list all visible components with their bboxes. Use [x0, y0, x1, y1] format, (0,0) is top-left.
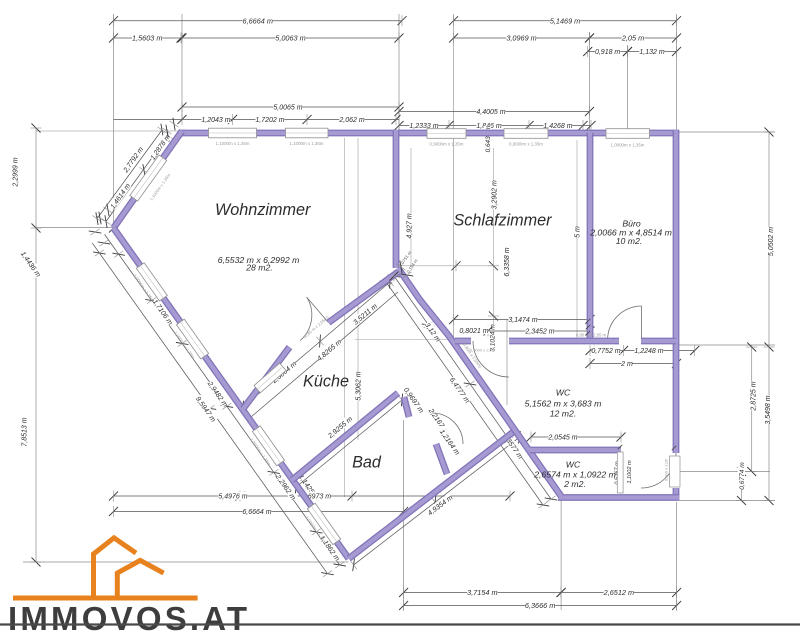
svg-text:6,3666 m: 6,3666 m [525, 601, 555, 610]
svg-text:6,3358 m: 6,3358 m [504, 247, 511, 276]
svg-text:2,0545 m: 2,0545 m [547, 435, 577, 442]
svg-text:5,1562 m x 3,683 m: 5,1562 m x 3,683 m [525, 399, 602, 409]
svg-text:0,6774 m: 0,6774 m [739, 462, 746, 490]
svg-text:5 m: 5 m [575, 226, 582, 238]
svg-text:2,05 m: 2,05 m [621, 34, 644, 43]
svg-text:3,0969 m: 3,0969 m [506, 34, 536, 43]
svg-text:5,0502 m: 5,0502 m [768, 227, 775, 256]
svg-text:5,1469 m: 5,1469 m [550, 16, 580, 25]
svg-text:10 m2.: 10 m2. [616, 236, 643, 246]
svg-text:0,9000 x 2,05: 0,9000 x 2,05 [470, 347, 495, 352]
svg-text:1,1002 m: 1,1002 m [627, 460, 633, 484]
svg-text:0,8021 m: 0,8021 m [459, 328, 488, 335]
svg-text:0,9000m x 1,35m: 0,9000m x 1,35m [430, 142, 464, 147]
svg-text:1,132 m: 1,132 m [639, 49, 664, 56]
svg-text:28 m2.: 28 m2. [245, 263, 273, 273]
svg-text:2 m: 2 m [620, 361, 633, 368]
svg-text:2,8725 m: 2,8725 m [751, 381, 758, 411]
svg-text:2,062 m: 2,062 m [338, 117, 364, 124]
svg-text:0,6431 m: 0,6431 m [485, 125, 492, 152]
svg-text:Bad: Bad [352, 453, 382, 471]
svg-text:7,8513 m: 7,8513 m [22, 417, 29, 446]
svg-text:1,5603 m: 1,5603 m [132, 34, 162, 43]
svg-text:3,2902 m: 3,2902 m [491, 180, 498, 209]
svg-text:5,0065 m: 5,0065 m [273, 105, 302, 112]
svg-text:6,6664 m: 6,6664 m [242, 509, 271, 516]
svg-text:1,2248 m: 1,2248 m [634, 348, 663, 355]
svg-text:6,6664 m: 6,6664 m [243, 16, 273, 25]
svg-text:0,9000m x 1,35m: 0,9000m x 1,35m [509, 142, 543, 147]
svg-text:2,6512 m: 2,6512 m [603, 588, 634, 597]
svg-text:0,900 x 2,05: 0,900 x 2,05 [663, 458, 668, 481]
svg-text:4,4005 m: 4,4005 m [476, 109, 505, 116]
svg-text:5,3062 m: 5,3062 m [356, 371, 363, 400]
svg-text:1,1000m x 1,35m: 1,1000m x 1,35m [216, 141, 250, 146]
svg-text:Schlafzimmer: Schlafzimmer [453, 211, 552, 229]
svg-text:2,6574 m x 1,0922 m: 2,6574 m x 1,0922 m [533, 470, 616, 480]
svg-text:IMMOVOS.AT: IMMOVOS.AT [8, 600, 250, 632]
svg-text:0,918 m: 0,918 m [595, 49, 620, 56]
svg-text:1,2043 m: 1,2043 m [201, 117, 230, 124]
svg-text:WC: WC [566, 460, 581, 470]
svg-text:WC: WC [556, 388, 571, 398]
svg-text:2,2999 m: 2,2999 m [13, 157, 20, 187]
svg-text:5,0063 m: 5,0063 m [275, 34, 305, 43]
svg-text:4,927 m: 4,927 m [407, 213, 414, 238]
svg-text:1,0000m x 1,35m: 1,0000m x 1,35m [611, 143, 645, 148]
svg-text:1,1000m x 1,35m: 1,1000m x 1,35m [290, 141, 324, 146]
svg-text:3,5498 m: 3,5498 m [765, 395, 772, 424]
svg-text:5,4976 m: 5,4976 m [218, 494, 247, 501]
svg-text:2 m2.: 2 m2. [563, 479, 586, 489]
svg-text:1,7202 m: 1,7202 m [255, 117, 284, 124]
svg-text:3,1474 m: 3,1474 m [508, 317, 537, 324]
svg-text:0,7752 m: 0,7752 m [591, 348, 620, 355]
svg-text:3,7154 m: 3,7154 m [467, 588, 497, 597]
svg-text:Wohnzimmer: Wohnzimmer [215, 201, 311, 219]
svg-text:12 m2.: 12 m2. [550, 408, 577, 418]
svg-text:2,3452 m: 2,3452 m [524, 329, 554, 336]
svg-text:Küche: Küche [303, 372, 349, 390]
svg-text:0,80 m x 2,05 m: 0,80 m x 2,05 m [576, 333, 607, 338]
